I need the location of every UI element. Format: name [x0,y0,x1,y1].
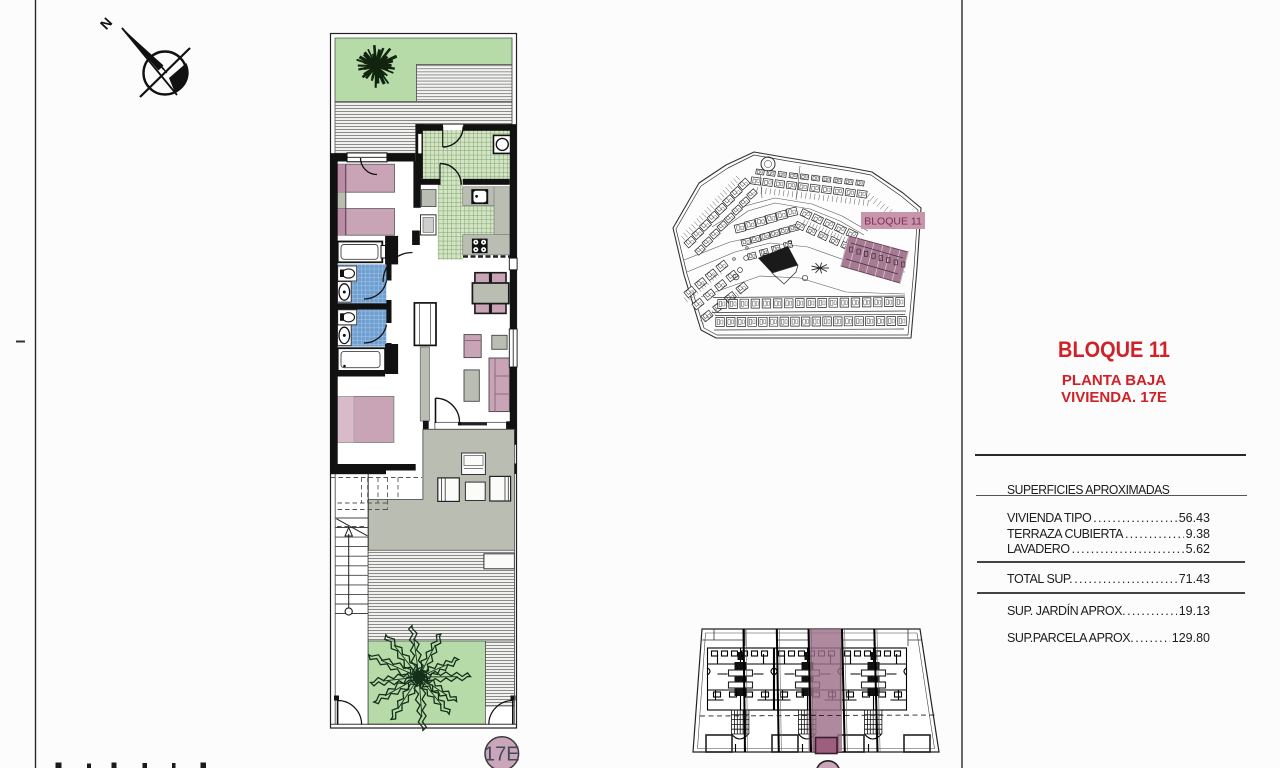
svg-text:N: N [97,14,116,32]
svg-text:BLOQUE 11: BLOQUE 11 [864,216,922,228]
svg-text:17E: 17E [484,744,520,766]
